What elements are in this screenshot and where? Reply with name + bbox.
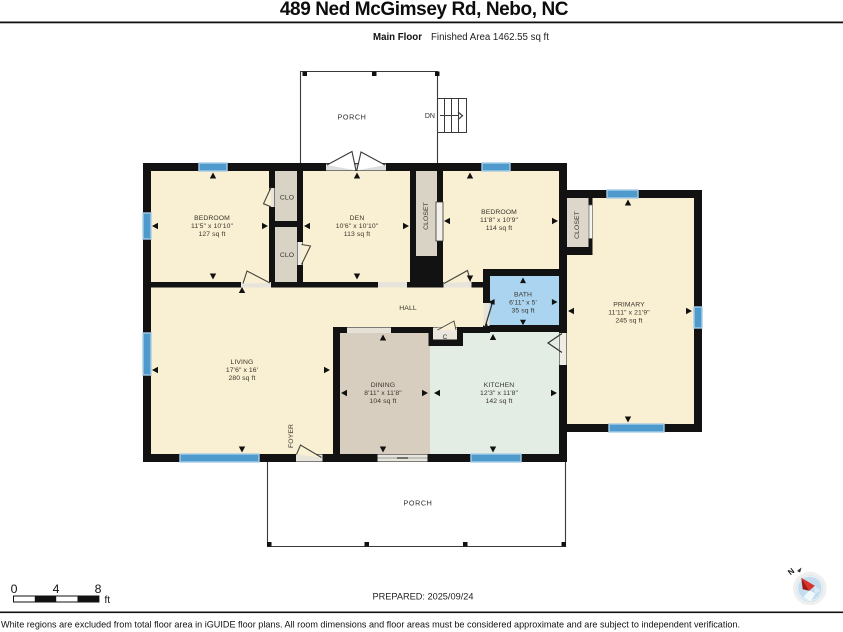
svg-text:8: 8 — [95, 582, 102, 596]
svg-text:PREPARED: 2025/09/24: PREPARED: 2025/09/24 — [373, 592, 474, 602]
svg-text:DINING: DINING — [371, 382, 395, 389]
svg-text:4: 4 — [53, 582, 60, 596]
svg-text:35 sq ft: 35 sq ft — [511, 308, 534, 315]
svg-text:BEDROOM: BEDROOM — [481, 209, 517, 216]
svg-text:11'8" x 10'9": 11'8" x 10'9" — [480, 217, 519, 224]
svg-text:113 sq ft: 113 sq ft — [344, 231, 370, 238]
svg-text:10'6" x 10'10": 10'6" x 10'10" — [336, 223, 379, 230]
svg-text:BATH: BATH — [514, 292, 532, 299]
svg-text:CLO: CLO — [280, 252, 294, 259]
svg-text:PORCH: PORCH — [404, 499, 433, 508]
svg-text:489 Ned McGimsey Rd, Nebo, NC: 489 Ned McGimsey Rd, Nebo, NC — [280, 0, 569, 20]
svg-text:CLO: CLO — [280, 195, 294, 202]
svg-text:FOYER: FOYER — [288, 424, 295, 448]
svg-text:LIVING: LIVING — [231, 359, 254, 366]
svg-text:11'11" x 21'9": 11'11" x 21'9" — [608, 310, 650, 317]
svg-text:ft: ft — [105, 595, 111, 606]
svg-text:Main Floor: Main Floor — [373, 32, 422, 43]
svg-text:PRIMARY: PRIMARY — [613, 302, 645, 309]
svg-text:17'6" x 16': 17'6" x 16' — [226, 367, 258, 374]
svg-text:12'3" x 11'8": 12'3" x 11'8" — [480, 390, 519, 397]
svg-text:11'5" x 10'10": 11'5" x 10'10" — [191, 223, 233, 230]
svg-text:114 sq ft: 114 sq ft — [486, 225, 512, 232]
svg-text:HALL: HALL — [399, 305, 417, 312]
svg-text:PORCH: PORCH — [338, 113, 367, 122]
svg-text:BEDROOM: BEDROOM — [194, 215, 230, 222]
svg-text:White regions are excluded fro: White regions are excluded from total fl… — [1, 620, 740, 630]
svg-text:CLOSET: CLOSET — [574, 211, 581, 239]
svg-text:C: C — [443, 334, 448, 341]
svg-text:8'11" x 11'8": 8'11" x 11'8" — [364, 390, 402, 397]
svg-text:6'11" x 5': 6'11" x 5' — [509, 300, 537, 307]
svg-text:245 sq ft: 245 sq ft — [616, 318, 643, 325]
svg-text:DN: DN — [425, 113, 435, 120]
svg-text:CLOSET: CLOSET — [423, 202, 430, 230]
svg-text:142 sq ft: 142 sq ft — [486, 398, 513, 405]
svg-text:104 sq ft: 104 sq ft — [370, 398, 397, 405]
svg-text:280 sq ft: 280 sq ft — [229, 375, 256, 382]
svg-text:Finished Area 1462.55 sq ft: Finished Area 1462.55 sq ft — [431, 32, 549, 43]
svg-text:127 sq ft: 127 sq ft — [199, 231, 226, 238]
svg-text:KITCHEN: KITCHEN — [484, 382, 515, 389]
svg-text:DEN: DEN — [350, 215, 365, 222]
svg-text:0: 0 — [11, 582, 18, 596]
